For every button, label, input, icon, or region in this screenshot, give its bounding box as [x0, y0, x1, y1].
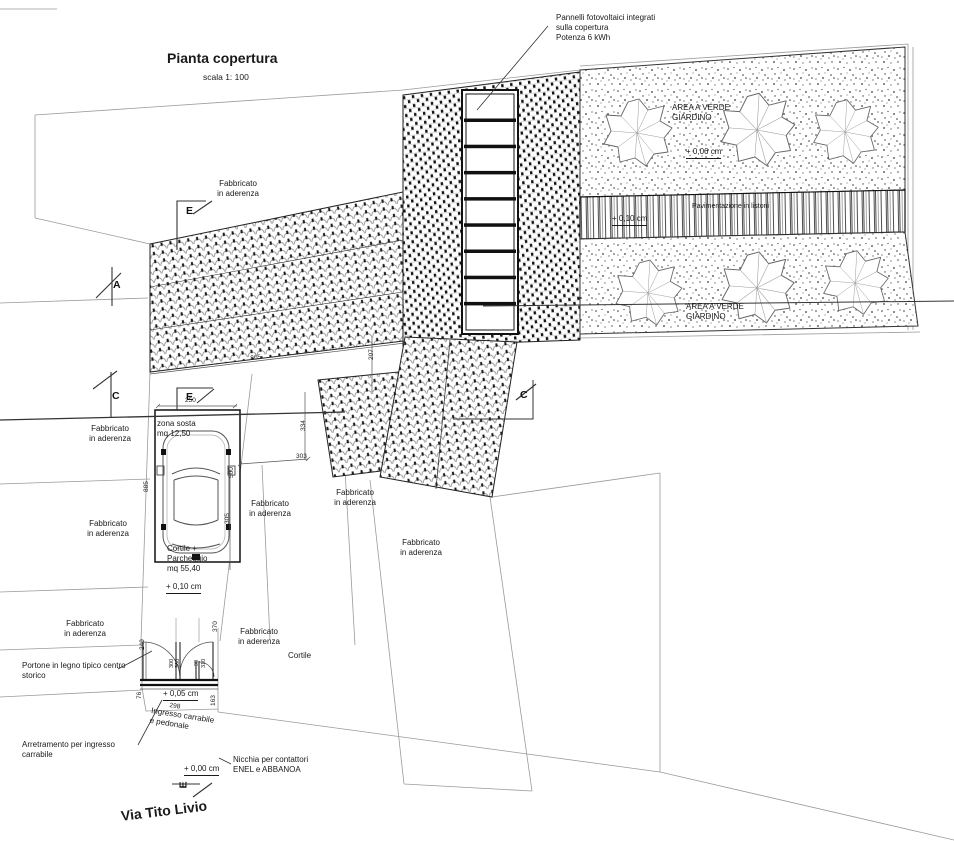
roof-middle-large	[380, 337, 517, 497]
label-portone: Portone in legno tipico centro storico	[22, 661, 137, 681]
level-street: + 0,00 cm	[184, 764, 219, 776]
dim-sill: 76	[136, 692, 143, 699]
roof-top-left	[150, 192, 403, 372]
label-fabbricato-3: Fabbricato in aderenza	[75, 519, 141, 539]
level-courtyard: + 0,10 cm	[166, 582, 201, 594]
label-cortile-parcheggio: Cortile + Parcheggio mq 55,40	[167, 544, 207, 574]
label-fabbricato-5: Fabbricato in aderenza	[237, 499, 303, 519]
label-nicchia: Nicchia per contattori ENEL e ABBANOA	[233, 755, 308, 775]
solar-panel-array	[462, 90, 518, 334]
dim-court-gap: 303	[296, 453, 307, 460]
label-fabbricato-7: Fabbricato in aderenza	[388, 538, 454, 558]
dim-small-a: 90	[194, 660, 200, 666]
label-zona-sosta: zona sosta mq 12,50	[157, 419, 196, 439]
label-solar-annotation: Pannelli fotovoltaici integrati sulla co…	[556, 13, 655, 43]
marker-section-e-top: E	[186, 205, 193, 217]
marker-section-c-right: C	[520, 389, 528, 401]
dim-niche-side: 163	[210, 695, 217, 706]
dim-mid-roof-side: 334	[300, 420, 307, 431]
dim-court-length: 885	[143, 481, 150, 492]
level-entrance: + 0,05 cm	[163, 689, 198, 701]
label-fabbricato-1: Fabbricato in aderenza	[202, 179, 274, 199]
marker-section-c-left: C	[112, 390, 120, 402]
label-fabbricato-8: Fabbricato in aderenza	[226, 627, 292, 647]
label-area-verde-bottom: AREA A VERDE GIARDINO	[686, 302, 744, 322]
page-scale: scala 1: 100	[203, 72, 249, 83]
label-arretramento: Arretramento per ingresso carrabile	[22, 740, 137, 760]
page-title: Pianta copertura	[167, 50, 277, 68]
dim-small-b: 310	[201, 659, 207, 668]
dim-door-right: 370	[212, 621, 219, 632]
dim-entrance-width: 298	[169, 702, 181, 710]
marker-section-e-bottom: E	[178, 781, 190, 788]
label-cortile: Cortile	[288, 651, 311, 661]
car-top-view	[157, 431, 235, 560]
plan-drawing	[0, 0, 954, 841]
roof-plan-page: Pianta copertura scala 1: 100 Via Tito L…	[0, 0, 954, 841]
dim-court-side: 305	[224, 513, 231, 524]
label-fabbricato-6: Fabbricato in aderenza	[322, 488, 388, 508]
dim-roof-side: 207	[368, 349, 375, 360]
label-paving: Pavimentazione in listoni	[692, 203, 769, 212]
label-fabbricato-4: Fabbricato in aderenza	[52, 619, 118, 639]
label-fabbricato-2: Fabbricato in aderenza	[77, 424, 143, 444]
dim-parking-width: 250	[185, 397, 196, 404]
level-paving: + 0,10 cm	[612, 214, 647, 226]
label-area-verde-top: AREA A VERDE GIARDINO	[672, 103, 730, 123]
dim-door-left: 249	[139, 639, 146, 650]
dim-parking-length: 500	[228, 467, 235, 478]
level-garden: + 0,06 cm	[686, 147, 721, 159]
dim-roof-width: 865	[250, 354, 262, 362]
dim-leaf-b: 360	[175, 659, 181, 668]
marker-section-a: A	[113, 279, 121, 291]
entrance-door	[140, 618, 218, 689]
